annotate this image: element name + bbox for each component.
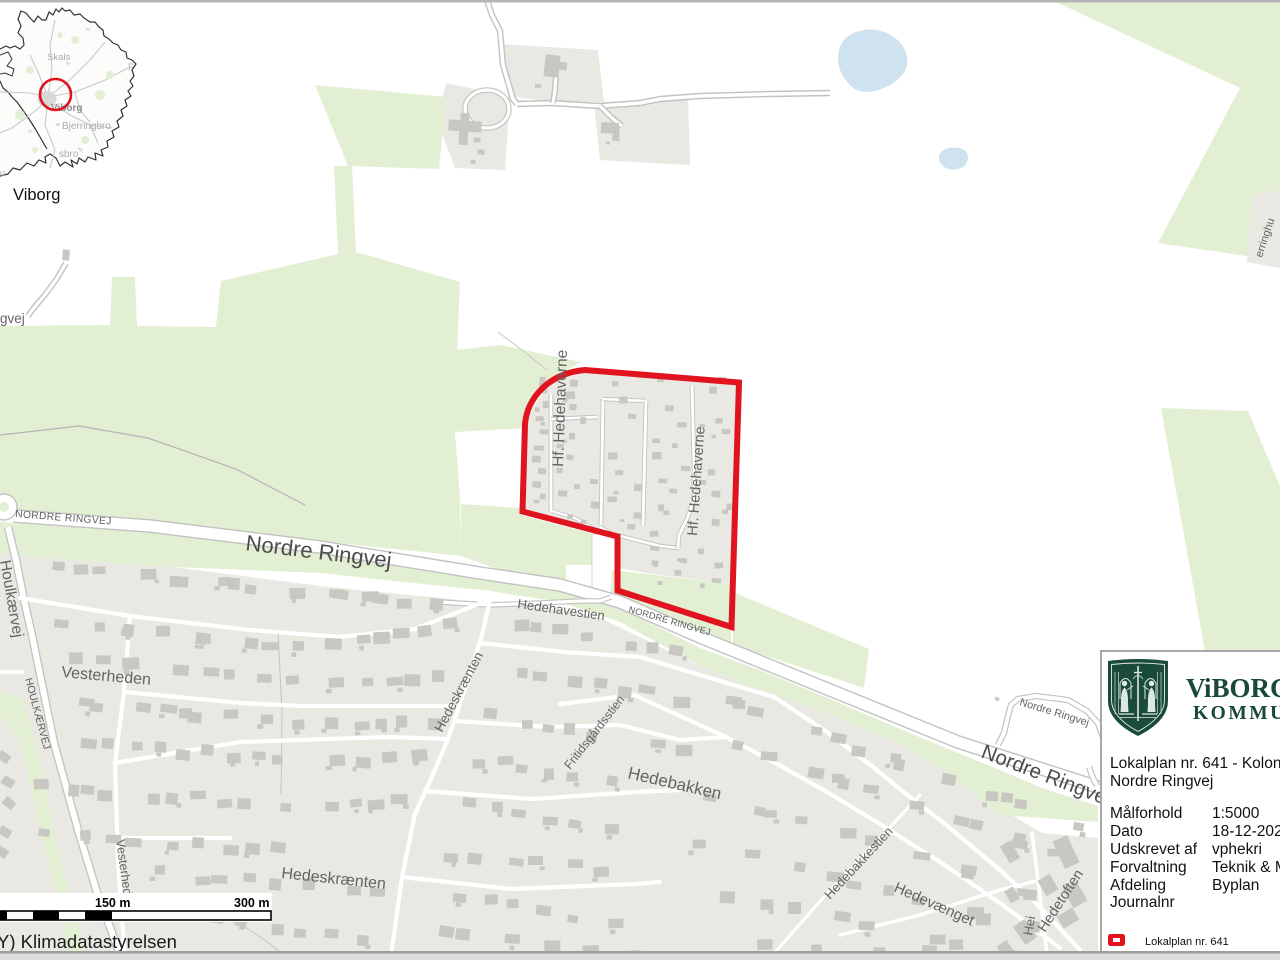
svg-text:F: F — [128, 62, 134, 72]
svg-text:sbro: sbro — [59, 149, 79, 160]
svg-text:150 m: 150 m — [95, 896, 130, 910]
svg-text:V: V — [1186, 673, 1206, 703]
svg-text:vphekri: vphekri — [1212, 841, 1262, 858]
svg-text:Nordre Ringvej: Nordre Ringvej — [1110, 773, 1213, 790]
svg-text:300 m: 300 m — [234, 896, 269, 910]
svg-text:iBORG: iBORG — [1204, 673, 1280, 703]
svg-text:Forvaltning: Forvaltning — [1110, 859, 1187, 876]
svg-text:Lokalplan nr. 641 - Kolonihave: Lokalplan nr. 641 - Kolonihaver ved — [1110, 755, 1280, 772]
svg-text:Afdeling: Afdeling — [1110, 877, 1166, 894]
svg-text:Journalnr: Journalnr — [1110, 894, 1175, 911]
svg-text:Teknik & Miljø: Teknik & Miljø — [1212, 859, 1280, 876]
svg-text:Y) Klimadatastyrelsen: Y) Klimadatastyrelsen — [0, 931, 177, 952]
svg-text:Dato: Dato — [1110, 823, 1143, 840]
svg-text:Udskrevet af: Udskrevet af — [1110, 841, 1198, 858]
svg-text:Målforhold: Målforhold — [1110, 805, 1182, 822]
svg-text:Bjerringbro: Bjerringbro — [62, 121, 111, 132]
svg-text:Byplan: Byplan — [1212, 877, 1259, 894]
svg-text:u: u — [0, 168, 5, 178]
svg-text:Lokalplan nr. 641: Lokalplan nr. 641 — [1145, 936, 1229, 948]
svg-text:Viborg: Viborg — [13, 186, 60, 204]
svg-text:1:5000: 1:5000 — [1212, 805, 1260, 822]
svg-text:18-12-2025: 18-12-2025 — [1212, 823, 1280, 840]
svg-text:KOMMUNE: KOMMUNE — [1193, 703, 1280, 724]
svg-text:Skals: Skals — [47, 52, 70, 63]
svg-text:gvej: gvej — [0, 311, 25, 326]
